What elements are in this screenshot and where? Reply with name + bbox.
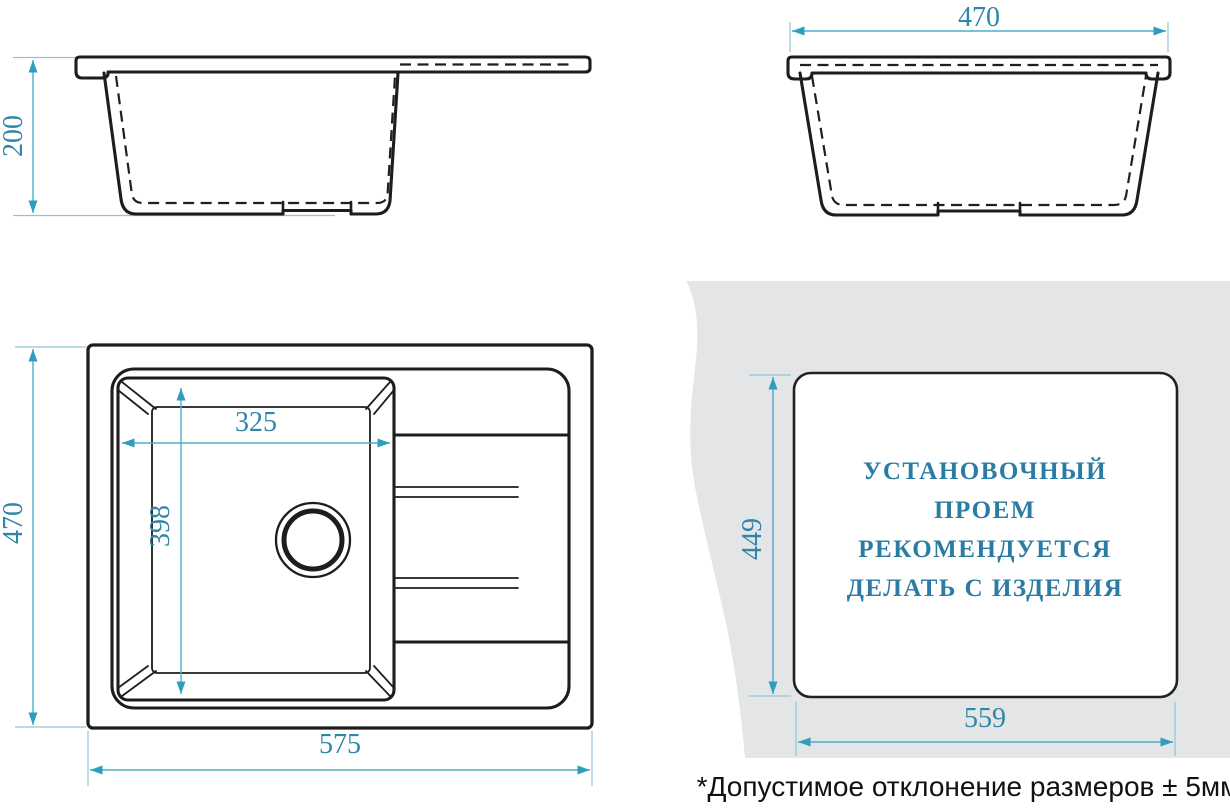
dimension-label-length: 575 (319, 729, 361, 760)
dimension-label-cutout-width: 559 (964, 703, 1006, 734)
hidden-bowl-surface (812, 76, 1146, 205)
cutout-note-line-3: РЕКОМЕНДУЕТСЯ (858, 536, 1111, 563)
dimension-label-depth: 200 (0, 115, 29, 157)
dimension-label-bowl-width: 325 (235, 407, 277, 438)
bowl-profile (104, 73, 398, 214)
sink-rim-profile (788, 57, 1170, 79)
install-view: УСТАНОВОЧНЫЙ ПРОЕМ РЕКОМЕНДУЕТСЯ ДЕЛАТЬ … (686, 281, 1230, 758)
bowl-profile (800, 73, 1158, 215)
sink-drawing-sheet: 200 470 470 575 (0, 0, 1230, 810)
cutout-note-line-4: ДЕЛАТЬ С ИЗДЕЛИЯ (847, 575, 1124, 602)
hidden-bowl-surface (116, 76, 395, 203)
drawing-svg: 200 470 470 575 (0, 0, 1230, 810)
cutout-note-line-1: УСТАНОВОЧНЫЙ (863, 457, 1107, 485)
cutout-opening (794, 373, 1177, 697)
drain-outer-ring (276, 503, 350, 577)
bowl-bottom (152, 407, 370, 673)
dimension-label-bowl-length: 398 (145, 505, 176, 547)
front-view: 470 (788, 2, 1170, 215)
drainboard-grooves (396, 487, 518, 588)
cutout-note-line-2: ПРОЕМ (934, 497, 1036, 524)
drainboard-edges (394, 435, 568, 642)
tolerance-note: *Допустимое отклонение размеров ± 5мм (697, 771, 1230, 802)
side-view: 200 (0, 57, 590, 216)
dimension-label-width: 470 (0, 502, 29, 544)
drain-hole (284, 511, 342, 569)
dimension-label-width: 470 (958, 2, 1000, 33)
dimension-label-cutout-height: 449 (737, 518, 768, 560)
sink-rim-profile (76, 57, 590, 78)
top-view: 470 575 325 398 (0, 345, 592, 786)
